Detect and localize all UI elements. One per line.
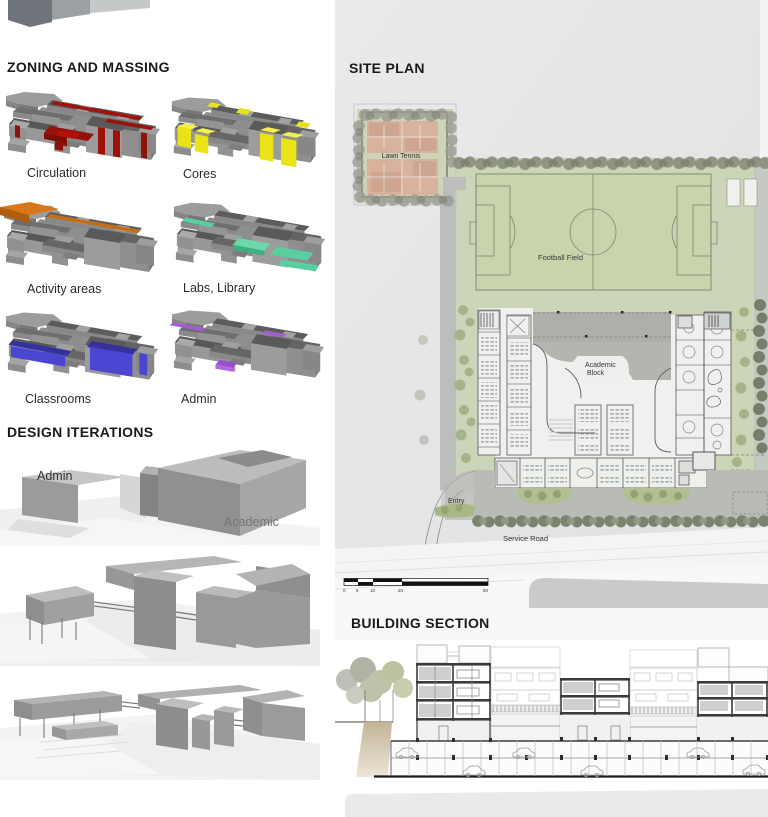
svg-text:Block: Block (587, 370, 605, 377)
svg-text:Academic: Academic (585, 362, 616, 369)
svg-text:50: 50 (483, 588, 489, 593)
svg-text:10: 10 (370, 588, 376, 593)
svg-text:Service Road: Service Road (503, 534, 548, 543)
svg-text:Football Field: Football Field (538, 253, 583, 262)
svg-text:20: 20 (398, 588, 404, 593)
svg-text:Entry: Entry (448, 498, 465, 505)
svg-text:Lawn Tennis: Lawn Tennis (382, 153, 421, 160)
